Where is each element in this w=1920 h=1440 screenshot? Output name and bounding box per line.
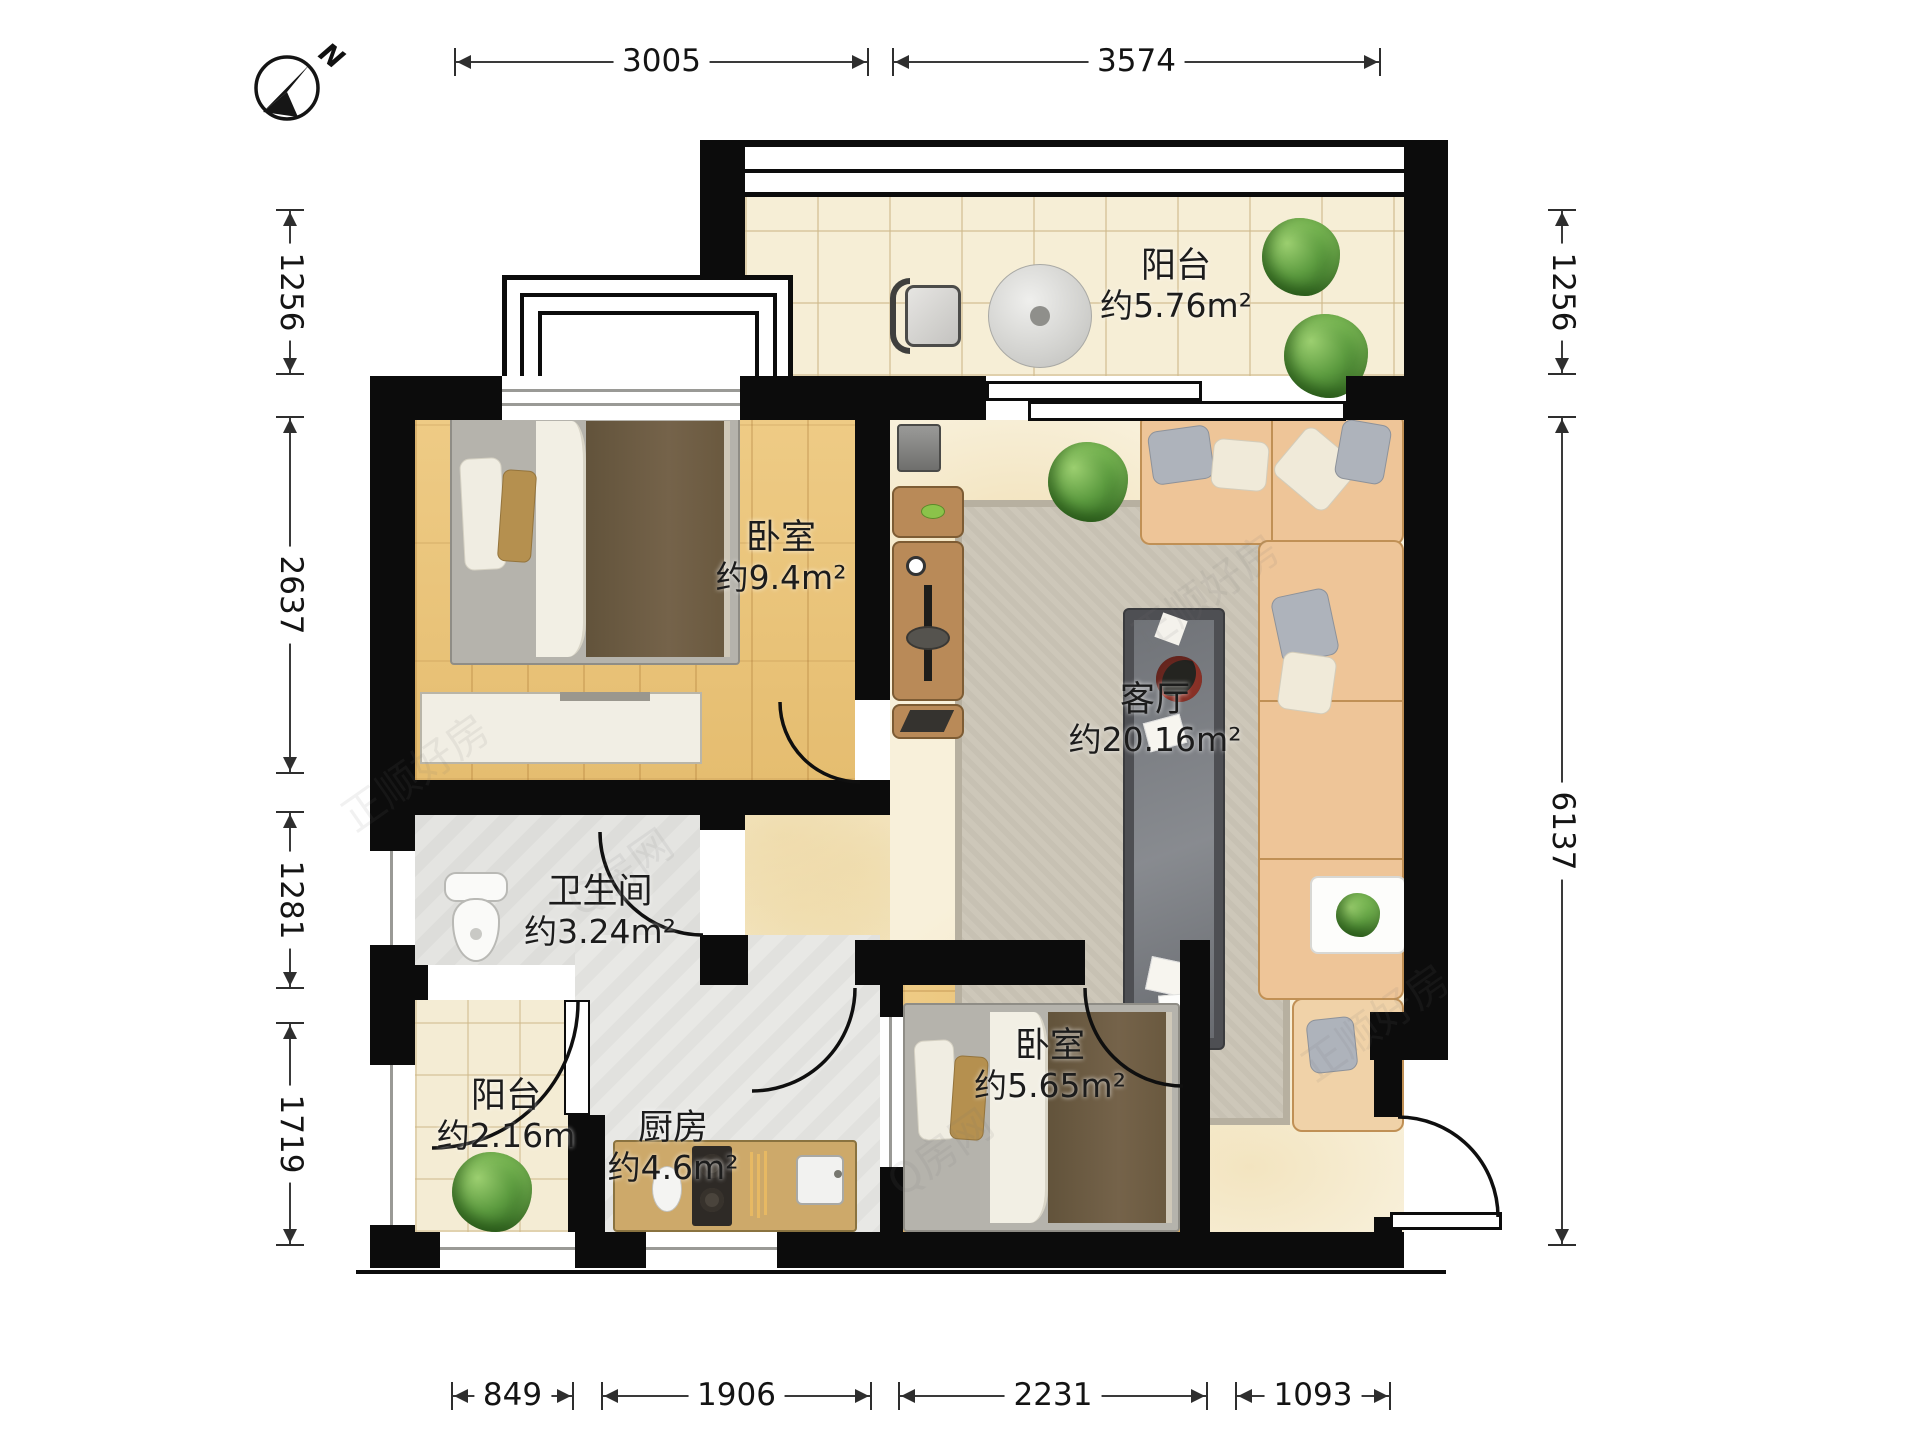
dimension-1256: 1256	[1561, 210, 1563, 374]
room-area-bedroom-1: 约9.4m²	[716, 559, 847, 598]
dim-value: 3005	[613, 43, 710, 79]
dim-arrow	[283, 212, 297, 226]
room-name-bedroom-2: 卧室	[974, 1026, 1126, 1067]
dimension-1256: 1256	[289, 210, 291, 374]
dimension-849: 849	[452, 1395, 573, 1397]
dim-arrow	[1555, 419, 1569, 433]
dim-tick	[892, 48, 894, 76]
dimension-1093: 1093	[1236, 1395, 1390, 1397]
dimension-2231: 2231	[899, 1395, 1207, 1397]
room-label-bedroom-1: 卧室约9.4m²	[716, 518, 847, 598]
dim-tick	[1548, 1244, 1576, 1246]
dim-arrow	[855, 1389, 869, 1403]
room-area-bathroom: 约3.24m²	[524, 913, 676, 952]
dim-tick	[572, 1382, 574, 1410]
dim-tick	[454, 48, 456, 76]
dim-arrow	[895, 55, 909, 69]
dimension-1906: 1906	[602, 1395, 871, 1397]
dim-tick	[276, 416, 304, 418]
floorplan-page: N 阳台约5.76m²卧室约9.4m²客厅约20.16m²卫生间约3.24m²阳…	[0, 0, 1920, 1440]
bedroom-1-door-arc	[780, 702, 860, 782]
dim-tick	[276, 987, 304, 989]
room-name-balcony-bottom: 阳台	[437, 1076, 576, 1117]
dim-tick	[601, 1382, 603, 1410]
dimension-1719: 1719	[289, 1023, 291, 1245]
dimension-3574: 3574	[893, 61, 1380, 63]
dim-tick	[898, 1382, 900, 1410]
dim-tick	[867, 48, 869, 76]
room-name-kitchen: 厨房	[608, 1108, 739, 1149]
dimension-1281: 1281	[289, 812, 291, 988]
dim-arrow	[1238, 1389, 1252, 1403]
dim-tick	[1389, 1382, 1391, 1410]
dim-arrow	[1364, 55, 1378, 69]
room-name-bedroom-1: 卧室	[716, 518, 847, 559]
dim-arrow	[852, 55, 866, 69]
dim-arrow	[1555, 212, 1569, 226]
room-label-balcony-top: 阳台约5.76m²	[1100, 246, 1252, 326]
dim-arrow	[1191, 1389, 1205, 1403]
room-label-bedroom-2: 卧室约5.65m²	[974, 1026, 1126, 1106]
dim-arrow	[283, 419, 297, 433]
dim-tick	[276, 373, 304, 375]
dim-arrow	[557, 1389, 571, 1403]
room-label-balcony-bottom: 阳台约2.16m	[437, 1076, 576, 1156]
dim-tick	[276, 811, 304, 813]
dim-tick	[1548, 209, 1576, 211]
dim-tick	[276, 772, 304, 774]
dim-tick	[870, 1382, 872, 1410]
dim-value: 1281	[273, 852, 309, 949]
dim-arrow	[604, 1389, 618, 1403]
dim-arrow	[283, 1229, 297, 1243]
dim-arrow	[283, 358, 297, 372]
kitchen-door-arc	[752, 988, 855, 1091]
compass: N	[256, 37, 350, 119]
dim-arrow	[1555, 358, 1569, 372]
dim-arrow	[457, 55, 471, 69]
dim-arrow	[283, 972, 297, 986]
room-name-balcony-top: 阳台	[1100, 246, 1252, 287]
entry-door-arc	[1398, 1117, 1498, 1217]
dim-arrow	[454, 1389, 468, 1403]
dim-tick	[1548, 416, 1576, 418]
room-area-balcony-top: 约5.76m²	[1100, 287, 1252, 326]
dim-value: 849	[474, 1377, 551, 1413]
dim-value: 1093	[1265, 1377, 1362, 1413]
dim-value: 1906	[688, 1377, 785, 1413]
room-area-kitchen: 约4.6m²	[608, 1149, 739, 1188]
dim-value: 1256	[273, 244, 309, 341]
dim-tick	[451, 1382, 453, 1410]
dimension-6137: 6137	[1561, 417, 1563, 1245]
dim-arrow	[901, 1389, 915, 1403]
dimension-2637: 2637	[289, 417, 291, 773]
compass-north-label: N	[313, 37, 350, 76]
room-area-balcony-bottom: 约2.16m	[437, 1117, 576, 1156]
dim-value: 3574	[1088, 43, 1185, 79]
dim-value: 2231	[1005, 1377, 1102, 1413]
dim-tick	[1548, 373, 1576, 375]
dim-tick	[1379, 48, 1381, 76]
dim-tick	[1206, 1382, 1208, 1410]
dim-tick	[276, 1022, 304, 1024]
dim-value: 1256	[1545, 244, 1581, 341]
room-label-living-room: 客厅约20.16m²	[1069, 680, 1242, 760]
dim-arrow	[1374, 1389, 1388, 1403]
room-label-kitchen: 厨房约4.6m²	[608, 1108, 739, 1188]
dim-tick	[276, 1244, 304, 1246]
room-name-living-room: 客厅	[1069, 680, 1242, 721]
dimension-3005: 3005	[455, 61, 868, 63]
room-label-bathroom: 卫生间约3.24m²	[524, 872, 676, 952]
dim-arrow	[283, 757, 297, 771]
dim-tick	[1235, 1382, 1237, 1410]
dim-value: 1719	[273, 1086, 309, 1183]
dim-value: 2637	[273, 547, 309, 644]
dim-value: 6137	[1545, 783, 1581, 880]
dim-arrow	[283, 1025, 297, 1039]
room-name-bathroom: 卫生间	[524, 872, 676, 913]
dim-tick	[276, 209, 304, 211]
room-area-living-room: 约20.16m²	[1069, 721, 1242, 760]
room-area-bedroom-2: 约5.65m²	[974, 1067, 1126, 1106]
dim-arrow	[1555, 1229, 1569, 1243]
dim-arrow	[283, 814, 297, 828]
